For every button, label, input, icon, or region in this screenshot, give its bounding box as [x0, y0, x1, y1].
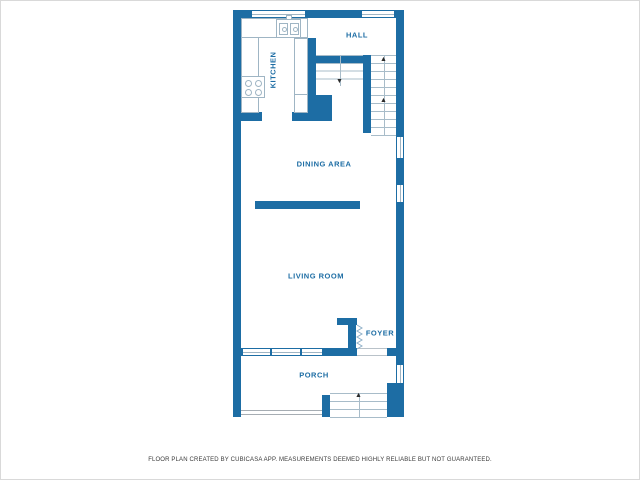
wall-kitchen-corner — [308, 95, 332, 113]
foyer-door-zigzag-icon — [355, 324, 364, 350]
porch-post-left — [322, 395, 330, 417]
sink-faucet-icon — [286, 15, 292, 20]
sink-basin-icon — [279, 23, 288, 35]
room-label-foyer: FOYER — [366, 329, 394, 338]
wall-kitchen-bottom-right — [292, 112, 332, 121]
stairs-up-arrow-icon: ▲ — [355, 392, 362, 399]
stairs-down-run: ▼ — [316, 55, 363, 86]
window-right-foyer — [396, 365, 404, 383]
room-label-kitchen: KITCHEN — [269, 52, 278, 89]
wall-room-divider-bar — [255, 201, 360, 209]
stairs-up-arrow-icon: ▲ — [380, 56, 387, 63]
burner-icon — [245, 89, 252, 96]
burner-icon — [245, 80, 252, 87]
wall-stair-divider — [363, 55, 371, 133]
refrigerator — [294, 94, 308, 113]
window-top-hall — [362, 10, 394, 18]
wall-kitchen-bottom-left — [233, 112, 262, 121]
window-living-2 — [272, 348, 300, 356]
room-label-porch: PORCH — [299, 371, 329, 380]
floor-plan-canvas: ▼ ▲ ▲ ▲ KITCHEN HALL DINING AREA LIVING … — [0, 0, 640, 480]
stairs-down-arrow-icon: ▼ — [336, 78, 343, 85]
cooktop — [241, 76, 265, 98]
porch-open-edge — [241, 410, 322, 415]
room-label-dining-area: DINING AREA — [297, 160, 352, 169]
window-top-kitchen-1 — [252, 10, 278, 18]
sink-basin-icon — [290, 23, 299, 35]
footer-disclaimer: FLOOR PLAN CREATED BY CUBICASA APP. MEAS… — [0, 457, 640, 463]
burner-icon — [255, 80, 262, 87]
porch-post-right — [387, 383, 404, 417]
room-label-living-room: LIVING ROOM — [288, 272, 344, 281]
room-label-hall: HALL — [346, 31, 368, 40]
stairs-up-arrow-icon: ▲ — [380, 97, 387, 104]
kitchen-sink — [276, 19, 301, 38]
stairs-up-run: ▲ ▲ — [371, 55, 396, 136]
window-right-dining-1 — [396, 137, 404, 158]
window-right-dining-2 — [396, 185, 404, 202]
porch-stairs: ▲ — [330, 393, 387, 418]
window-living-3 — [302, 348, 322, 356]
kitchen-counter-right — [294, 38, 308, 95]
burner-icon — [255, 89, 262, 96]
wall-foyer-cap — [337, 318, 357, 325]
window-living-1 — [243, 348, 270, 356]
